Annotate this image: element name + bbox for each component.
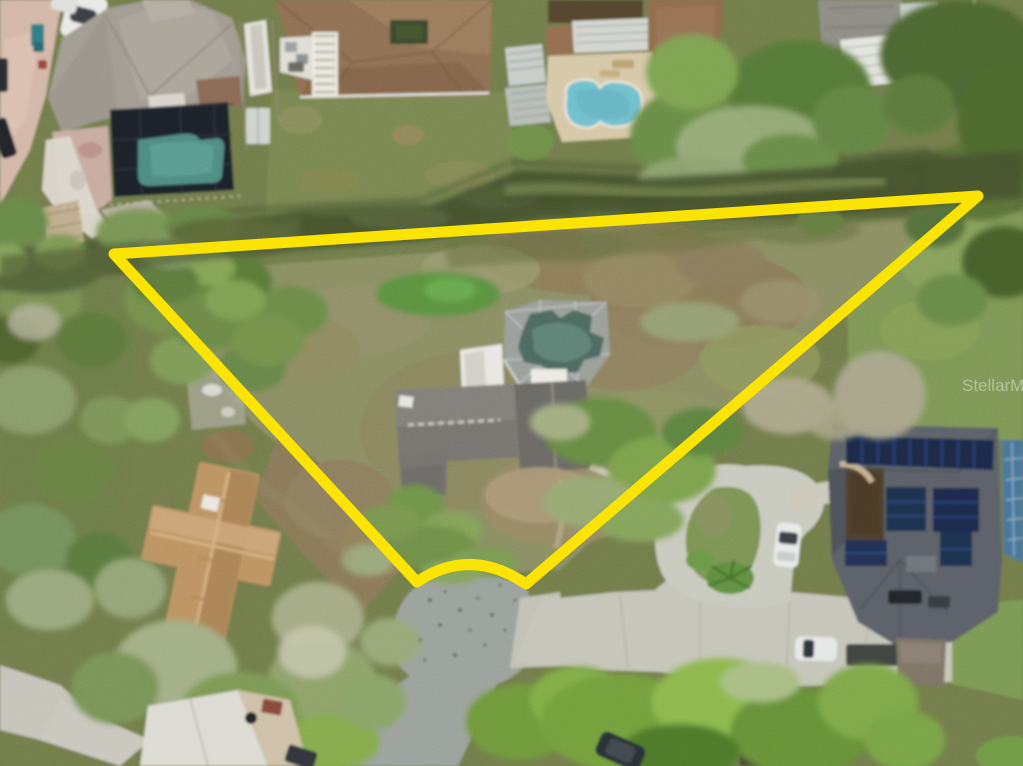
svg-text:StellarMLS: StellarMLS (962, 376, 1023, 395)
